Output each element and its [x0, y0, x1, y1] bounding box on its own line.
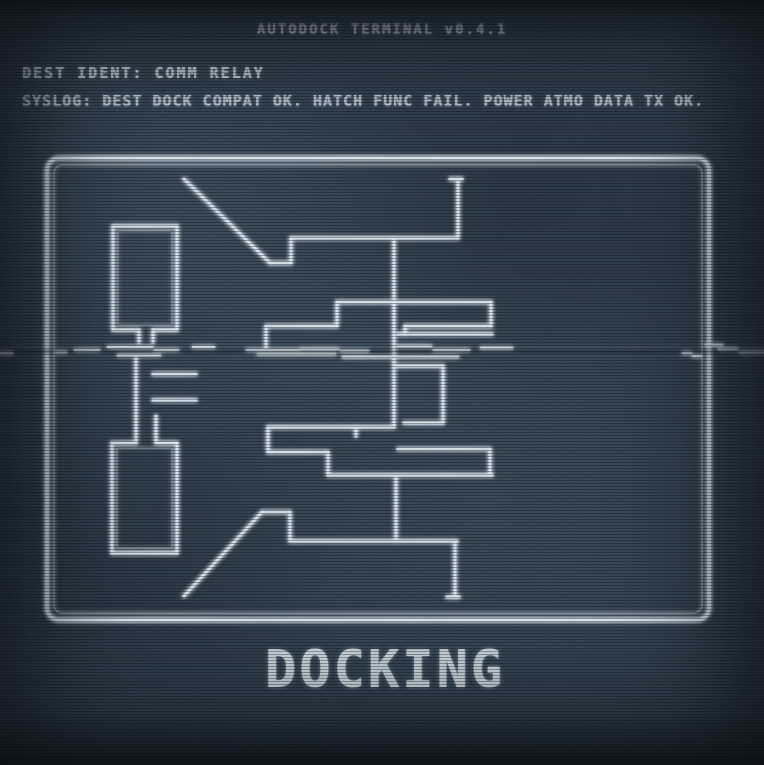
paper-crease	[0, 343, 764, 359]
autodock-terminal-screen: AUTODOCK TERMINAL v0.4.1 DEST IDENT: COM…	[0, 0, 764, 765]
docking-status-label: DOCKING	[0, 640, 764, 700]
syslog-line: SYSLOG: DEST DOCK COMPAT OK. HATCH FUNC …	[22, 92, 704, 110]
terminal-title: AUTODOCK TERMINAL v0.4.1	[0, 22, 764, 38]
dest-ident-line: DEST IDENT: COMM RELAY	[22, 64, 265, 82]
blueprint-lines	[0, 158, 764, 620]
